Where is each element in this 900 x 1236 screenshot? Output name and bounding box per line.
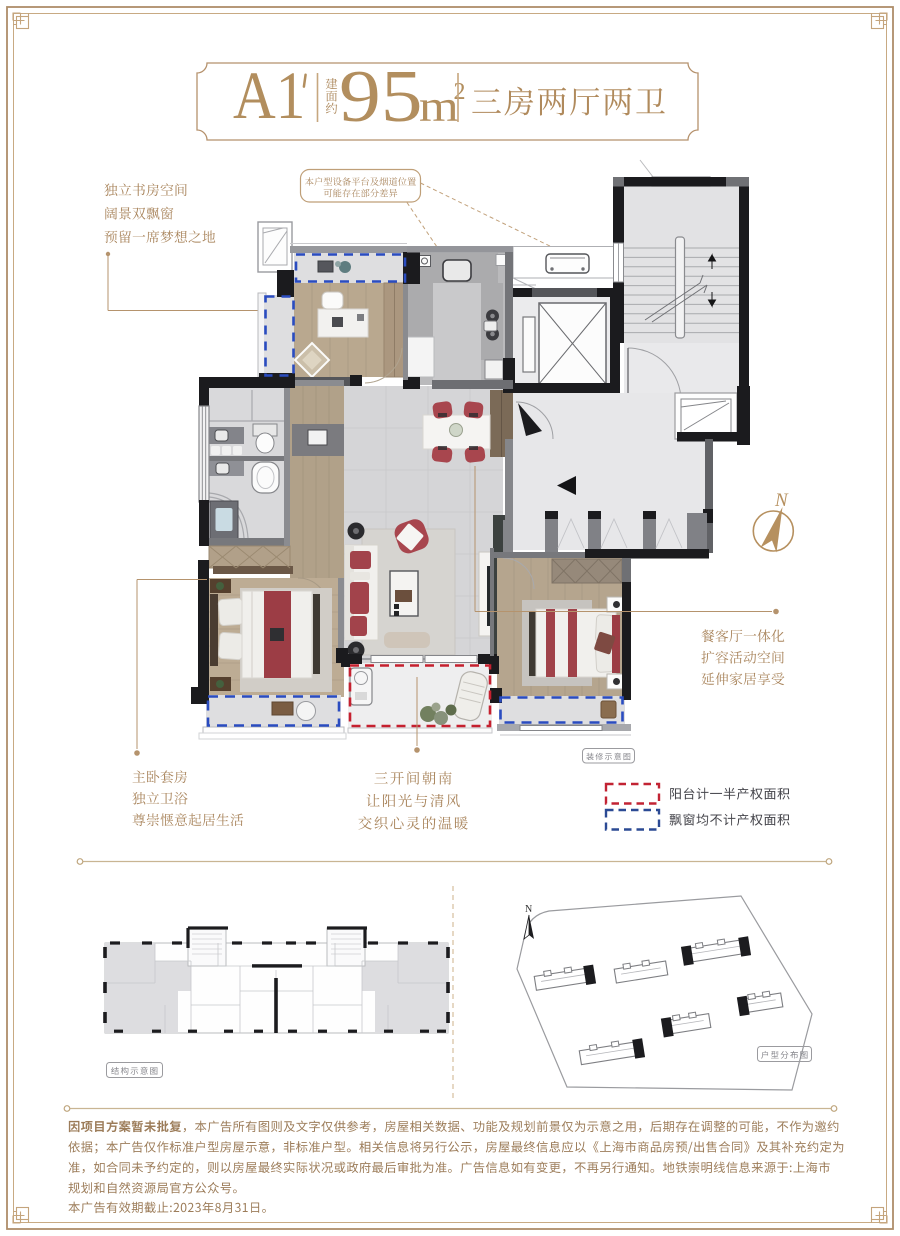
svg-text:A1: A1 [233,57,305,133]
svg-text:N: N [774,490,789,511]
svg-text:95: 95 [339,56,423,138]
svg-text:2: 2 [454,79,466,105]
svg-text:N: N [525,904,532,915]
